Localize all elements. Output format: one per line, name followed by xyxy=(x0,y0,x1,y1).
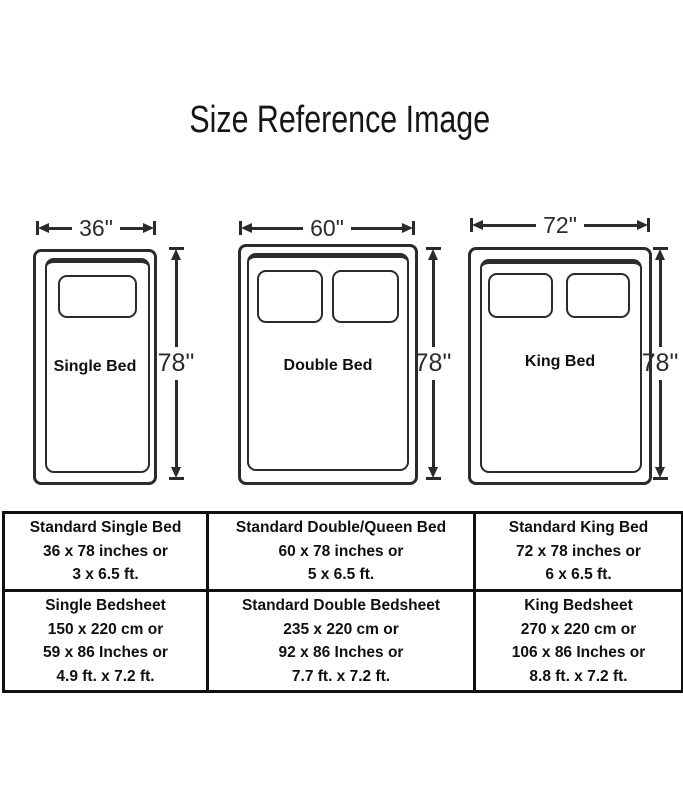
arrow-line xyxy=(584,224,637,227)
arrow-line xyxy=(175,380,178,467)
table-cell-line: 8.8 ft. x 7.2 ft. xyxy=(478,665,679,689)
page-title-text: Size Reference Image xyxy=(189,99,490,142)
table-cell-line: 72 x 78 inches or xyxy=(478,540,679,564)
table-cell-king-bedsheet: King Bedsheet 270 x 220 cm or 106 x 86 I… xyxy=(475,591,683,692)
table-cell-line: 36 x 78 inches or xyxy=(7,540,204,564)
arrow-line xyxy=(483,224,536,227)
arrow-line xyxy=(49,227,72,230)
single-bed-name-label: Single Bed xyxy=(36,358,154,376)
single-bed-outline: Single Bed xyxy=(33,249,157,485)
double-bed-width-arrow: 60" xyxy=(239,213,415,243)
king-bed-width-arrow: 72" xyxy=(470,210,650,240)
table-cell-line: 106 x 86 Inches or xyxy=(478,641,679,665)
table-cell-standard-double-bed: Standard Double/Queen Bed 60 x 78 inches… xyxy=(208,513,475,591)
arrow-left-icon xyxy=(241,223,252,233)
arrow-line xyxy=(120,227,143,230)
single-bed-height-label: 78" xyxy=(158,347,195,380)
double-bed-name-label: Double Bed xyxy=(241,357,415,375)
pillow xyxy=(58,275,137,318)
double-bed-height-label: 78" xyxy=(415,347,452,380)
page-title: Size Reference Image xyxy=(0,99,683,142)
arrow-end-tick xyxy=(426,477,441,480)
table-cell-double-bedsheet: Standard Double Bedsheet 235 x 220 cm or… xyxy=(208,591,475,692)
table-cell-line: 59 x 86 Inches or xyxy=(7,641,204,665)
arrow-end-tick xyxy=(647,218,650,232)
king-bed-outline: King Bed xyxy=(468,247,652,485)
pillow xyxy=(257,270,323,323)
table-cell-line: 6 x 6.5 ft. xyxy=(478,563,679,587)
table-cell-line: Standard Single Bed xyxy=(7,516,204,540)
arrow-line xyxy=(175,260,178,347)
arrow-line xyxy=(659,260,662,347)
arrow-end-tick xyxy=(169,477,184,480)
table-cell-line: 7.7 ft. x 7.2 ft. xyxy=(211,665,471,689)
king-bed-height-arrow: 78" xyxy=(639,247,681,480)
single-bed-width-arrow: 36" xyxy=(36,213,156,243)
arrow-line xyxy=(432,380,435,467)
arrow-line xyxy=(432,260,435,347)
double-bed-height-arrow: 78" xyxy=(412,247,454,480)
single-bed-width-label: 36" xyxy=(72,217,120,240)
table-cell-line: Single Bedsheet xyxy=(7,594,204,618)
table-cell-line: 60 x 78 inches or xyxy=(211,540,471,564)
pillow xyxy=(566,273,630,318)
table-row-bed-sizes: Standard Single Bed 36 x 78 inches or 3 … xyxy=(4,513,683,591)
arrow-up-icon xyxy=(655,249,665,260)
arrow-end-tick xyxy=(653,477,668,480)
table-cell-line: 270 x 220 cm or xyxy=(478,618,679,642)
arrow-left-icon xyxy=(472,220,483,230)
king-bed-width-label: 72" xyxy=(536,214,584,237)
size-reference-diagram: Size Reference Image 36" Single Bed 78" xyxy=(0,0,683,800)
table-cell-line: Standard King Bed xyxy=(478,516,679,540)
king-bed-name-label: King Bed xyxy=(471,353,649,371)
arrow-line xyxy=(659,380,662,467)
arrow-up-icon xyxy=(428,249,438,260)
arrow-end-tick xyxy=(412,221,415,235)
king-bed-height-label: 78" xyxy=(642,347,679,380)
table-cell-line: 92 x 86 Inches or xyxy=(211,641,471,665)
arrow-left-icon xyxy=(38,223,49,233)
table-cell-line: 150 x 220 cm or xyxy=(7,618,204,642)
table-cell-standard-single-bed: Standard Single Bed 36 x 78 inches or 3 … xyxy=(4,513,208,591)
single-bed-height-arrow: 78" xyxy=(155,247,197,480)
table-cell-single-bedsheet: Single Bedsheet 150 x 220 cm or 59 x 86 … xyxy=(4,591,208,692)
table-cell-line: 5 x 6.5 ft. xyxy=(211,563,471,587)
table-cell-line: Standard Double Bedsheet xyxy=(211,594,471,618)
double-bed-outline: Double Bed xyxy=(238,244,418,485)
table-cell-line: 4.9 ft. x 7.2 ft. xyxy=(7,665,204,689)
table-cell-line: 235 x 220 cm or xyxy=(211,618,471,642)
arrow-line xyxy=(252,227,303,230)
double-bed-width-label: 60" xyxy=(303,217,351,240)
table-cell-line: Standard Double/Queen Bed xyxy=(211,516,471,540)
table-cell-line: 3 x 6.5 ft. xyxy=(7,563,204,587)
arrow-end-tick xyxy=(153,221,156,235)
arrow-up-icon xyxy=(171,249,181,260)
pillow xyxy=(488,273,553,318)
table-row-bedsheet-sizes: Single Bedsheet 150 x 220 cm or 59 x 86 … xyxy=(4,591,683,692)
table-cell-standard-king-bed: Standard King Bed 72 x 78 inches or 6 x … xyxy=(475,513,683,591)
table-cell-line: King Bedsheet xyxy=(478,594,679,618)
pillow xyxy=(332,270,399,323)
arrow-line xyxy=(351,227,402,230)
size-table: Standard Single Bed 36 x 78 inches or 3 … xyxy=(2,511,683,693)
